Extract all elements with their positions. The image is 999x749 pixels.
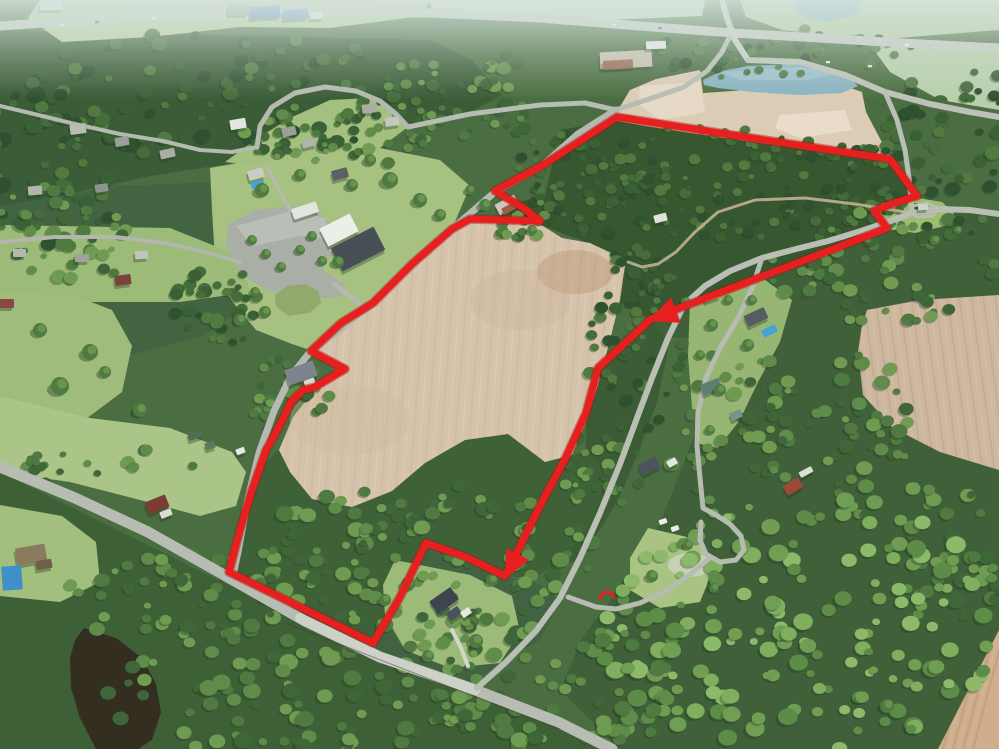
atmospheric-haze — [0, 0, 999, 100]
maroon-house — [112, 274, 132, 289]
house — [133, 251, 149, 263]
house — [382, 116, 400, 130]
house — [73, 254, 89, 265]
house — [26, 185, 43, 198]
house — [360, 103, 378, 117]
house — [11, 249, 26, 260]
field-soft-stain — [470, 270, 570, 330]
red-roof-house — [0, 299, 14, 311]
aerial-photo — [0, 0, 999, 749]
covered-pool — [1, 565, 23, 590]
photo-viewport — [0, 0, 999, 749]
house — [93, 183, 109, 196]
house — [67, 123, 87, 138]
